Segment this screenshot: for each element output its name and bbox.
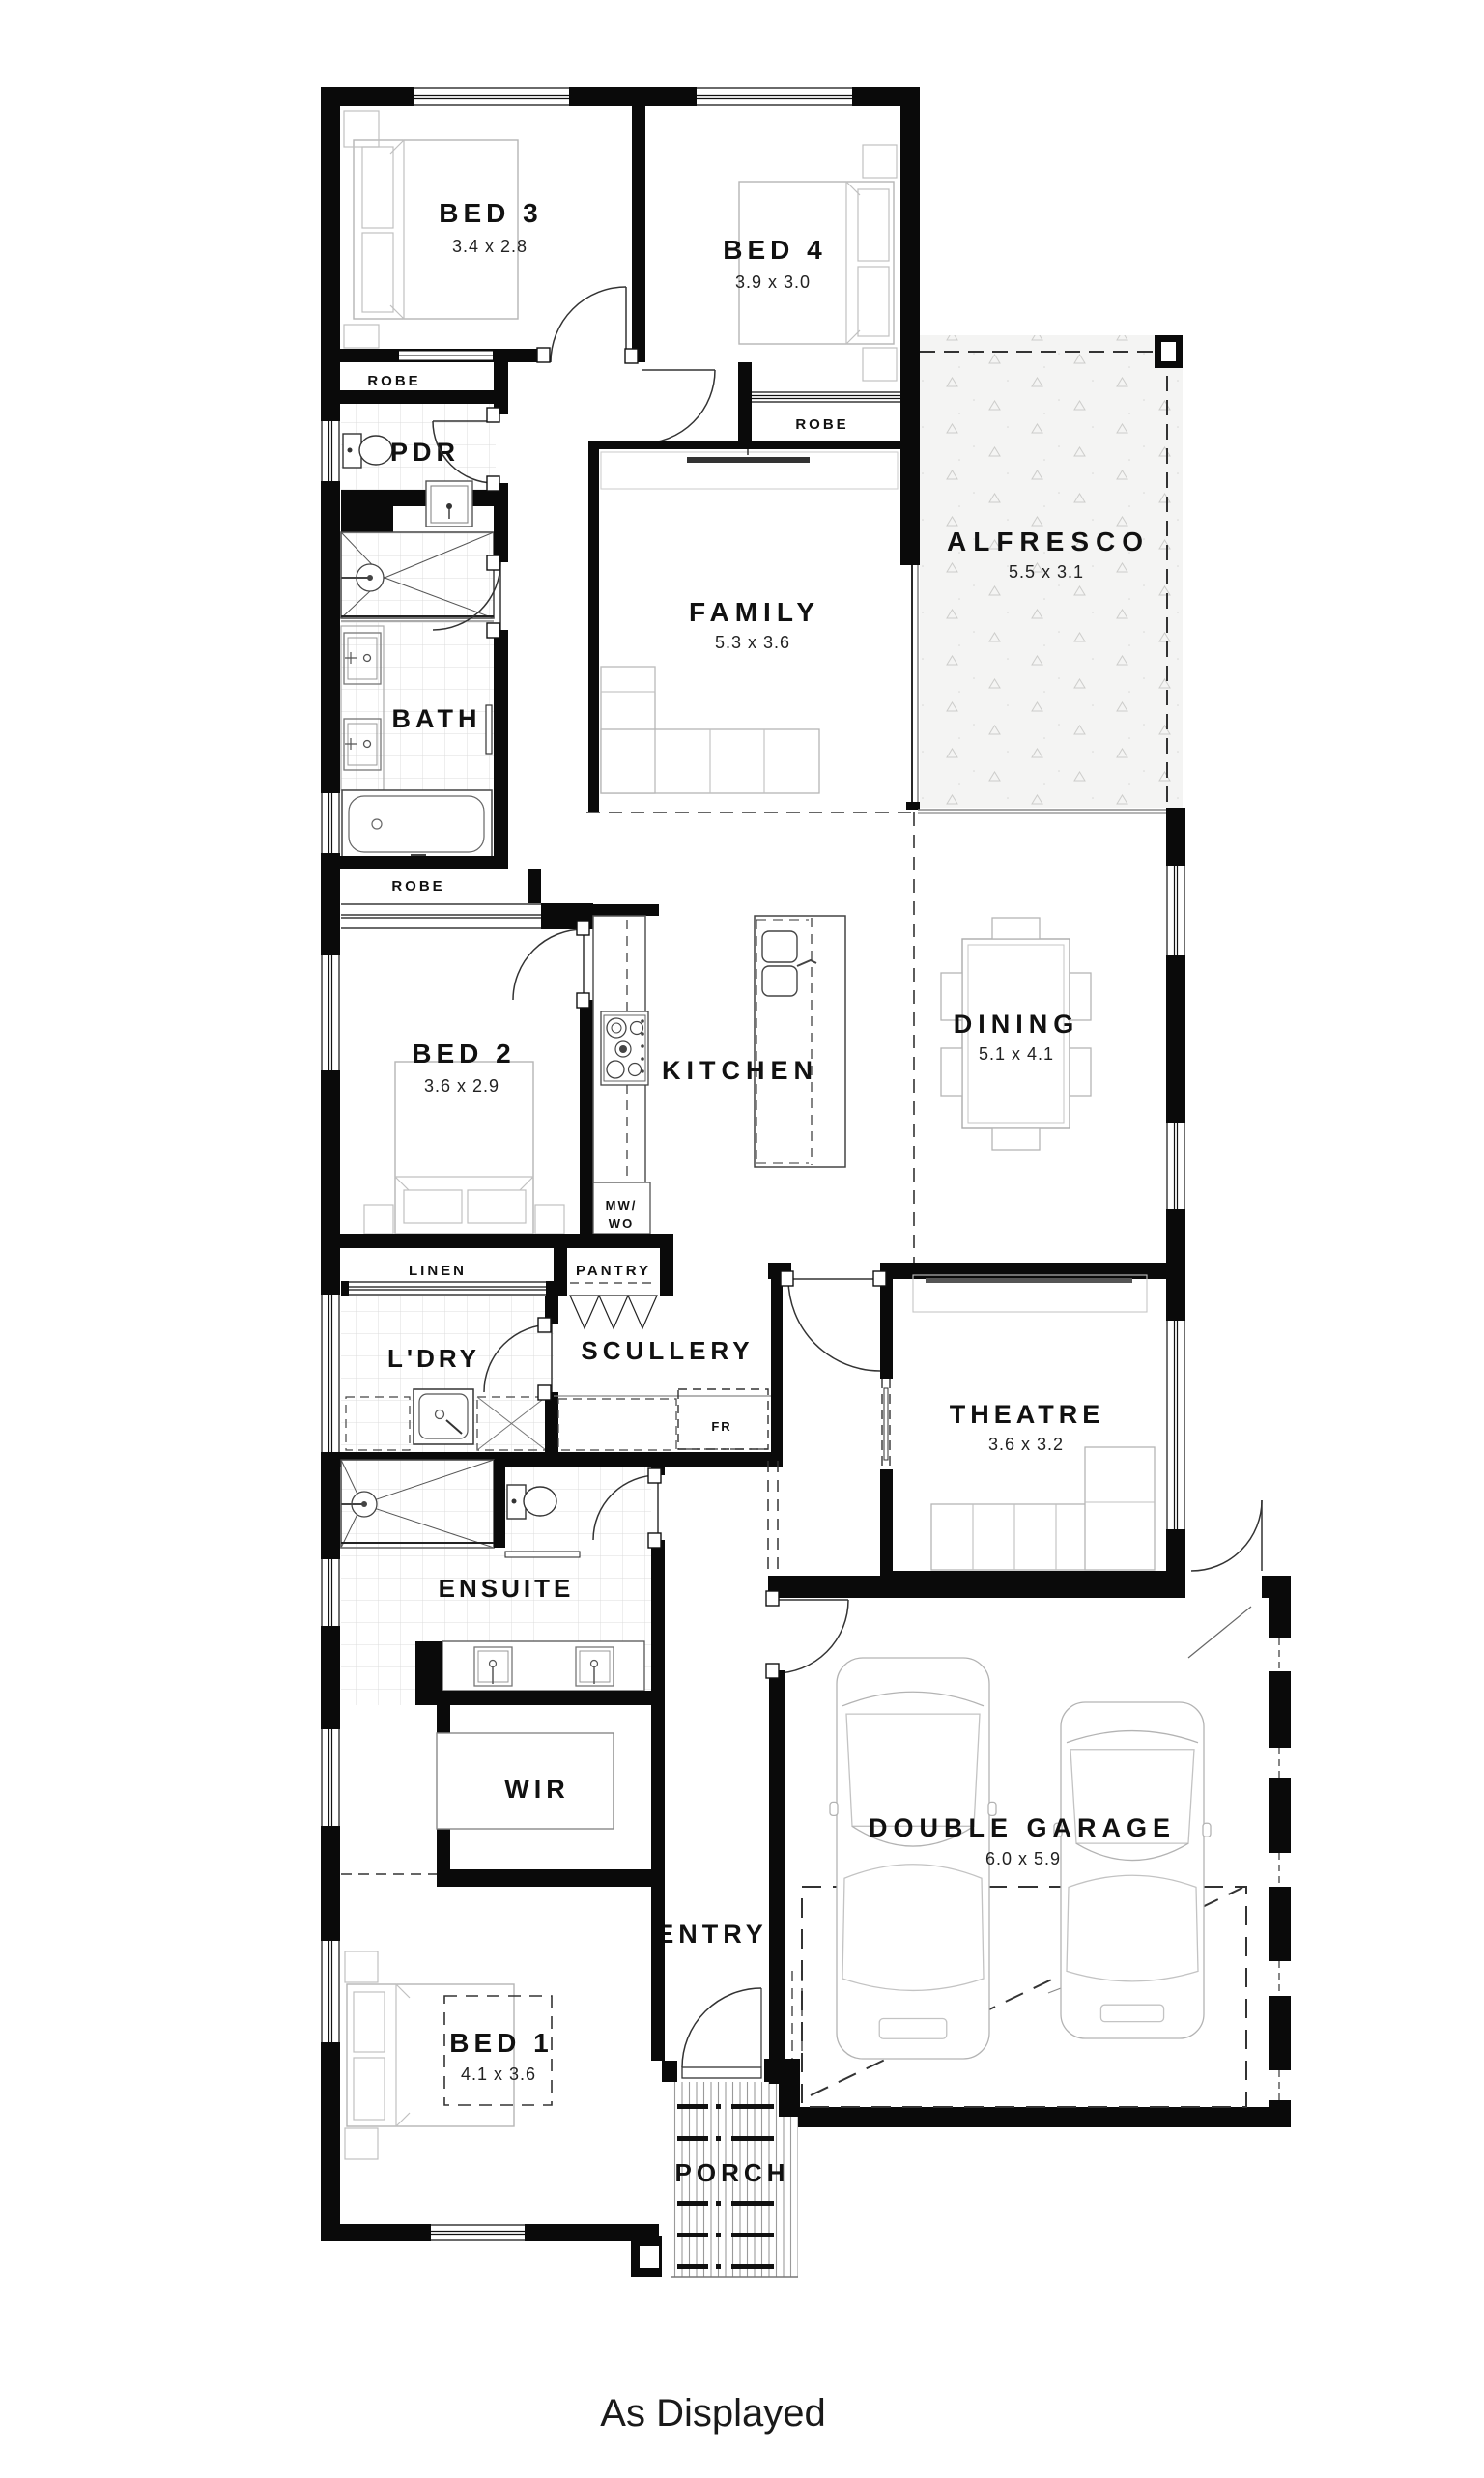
svg-text:WO: WO xyxy=(609,1216,634,1231)
svg-text:THEATRE: THEATRE xyxy=(950,1400,1105,1429)
svg-text:DINING: DINING xyxy=(954,1010,1080,1039)
svg-text:3.6 x 3.2: 3.6 x 3.2 xyxy=(988,1435,1064,1454)
svg-text:PANTRY: PANTRY xyxy=(576,1263,651,1279)
svg-text:ROBE: ROBE xyxy=(391,878,444,895)
svg-text:ENSUITE: ENSUITE xyxy=(439,1574,575,1603)
svg-text:ROBE: ROBE xyxy=(367,373,420,389)
svg-text:3.9 x 3.0: 3.9 x 3.0 xyxy=(735,272,811,292)
svg-text:ROBE: ROBE xyxy=(795,416,848,433)
svg-text:PORCH: PORCH xyxy=(675,2158,790,2187)
svg-text:As Displayed: As Displayed xyxy=(600,2392,825,2435)
svg-text:5.5 x 3.1: 5.5 x 3.1 xyxy=(1009,562,1084,582)
svg-text:5.1 x 4.1: 5.1 x 4.1 xyxy=(979,1044,1054,1064)
svg-text:LINEN: LINEN xyxy=(409,1263,467,1279)
svg-text:BED 4: BED 4 xyxy=(723,235,826,265)
svg-text:BED 1: BED 1 xyxy=(449,2028,553,2058)
svg-text:5.3 x 3.6: 5.3 x 3.6 xyxy=(715,633,790,652)
svg-text:BED 2: BED 2 xyxy=(412,1039,515,1068)
svg-text:BATH: BATH xyxy=(392,704,482,733)
svg-text:FAMILY: FAMILY xyxy=(689,597,820,627)
svg-text:WIR: WIR xyxy=(504,1775,569,1804)
svg-text:6.0 x 5.9: 6.0 x 5.9 xyxy=(985,1849,1061,1868)
svg-text:MW/: MW/ xyxy=(606,1198,638,1212)
svg-text:FR: FR xyxy=(711,1419,731,1434)
svg-text:DOUBLE GARAGE: DOUBLE GARAGE xyxy=(869,1813,1176,1842)
svg-text:KITCHEN: KITCHEN xyxy=(662,1056,818,1085)
svg-text:4.1 x 3.6: 4.1 x 3.6 xyxy=(461,2065,536,2084)
svg-text:ALFRESCO: ALFRESCO xyxy=(947,527,1150,556)
svg-text:ENTRY: ENTRY xyxy=(656,1920,768,1949)
svg-text:3.4 x 2.8: 3.4 x 2.8 xyxy=(452,237,528,256)
svg-text:SCULLERY: SCULLERY xyxy=(581,1336,754,1365)
svg-text:3.6 x 2.9: 3.6 x 2.9 xyxy=(424,1076,499,1096)
svg-text:BED 3: BED 3 xyxy=(439,198,542,228)
svg-text:PDR: PDR xyxy=(390,438,460,467)
svg-text:L'DRY: L'DRY xyxy=(387,1344,480,1373)
